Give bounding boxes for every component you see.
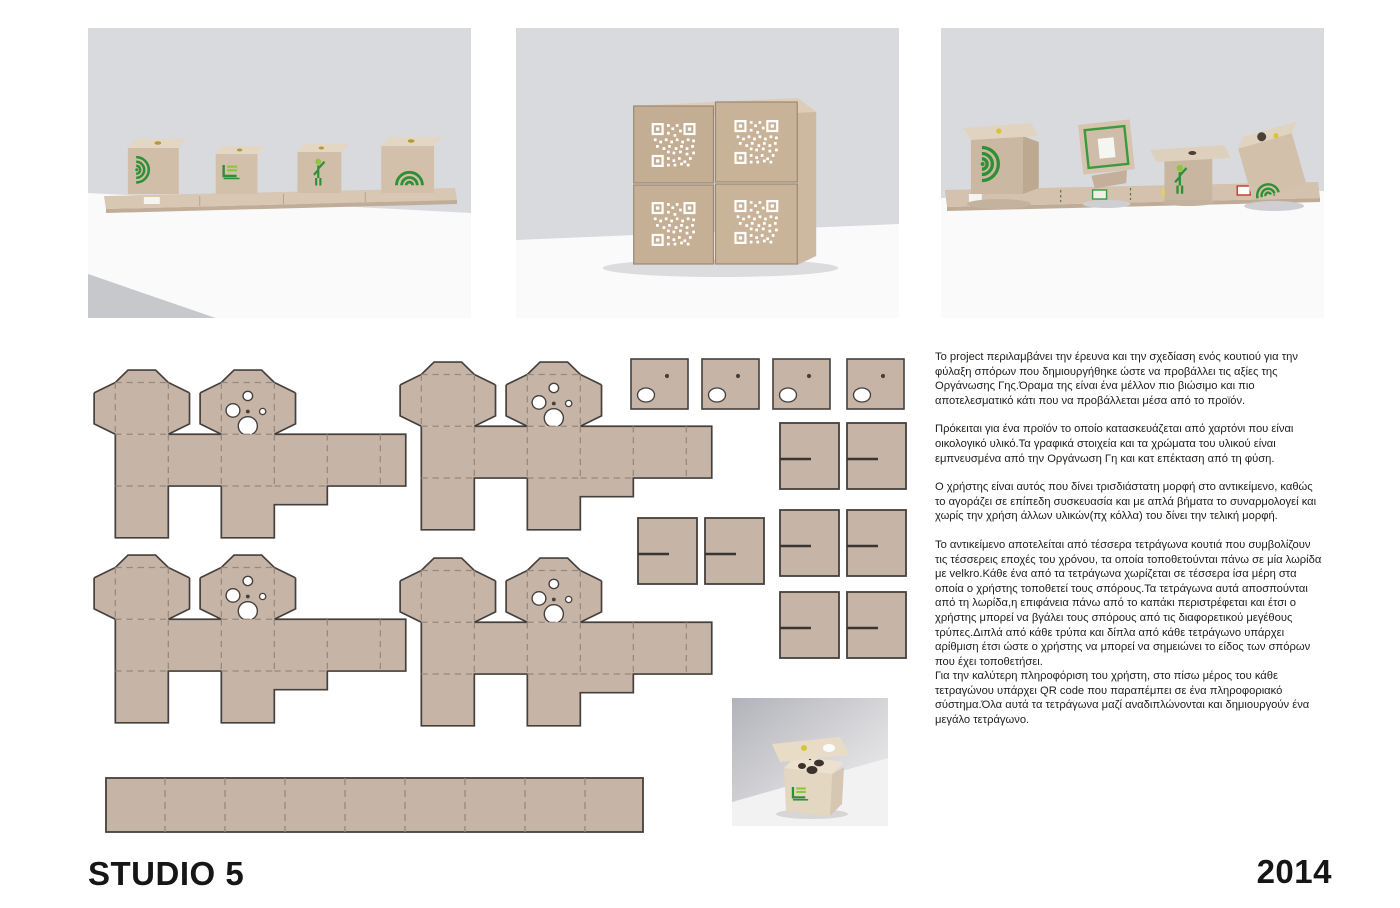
photo-floating-boxes-image bbox=[941, 28, 1324, 318]
project-description: Το project περιλαμβάνει την έρευνα και τ… bbox=[935, 350, 1325, 742]
photo-boxes-on-strip bbox=[88, 28, 471, 318]
photo-single-box bbox=[732, 698, 888, 826]
velcro-strip-template bbox=[105, 777, 644, 833]
portfolio-page: Το project περιλαμβάνει την έρευνα και τ… bbox=[0, 0, 1400, 908]
diecut-template-1 bbox=[92, 368, 410, 544]
divider-square-1b bbox=[846, 422, 907, 490]
photo-single-box-image bbox=[732, 698, 888, 826]
diecut-template-3 bbox=[92, 553, 410, 729]
photo-qr-stack-image bbox=[516, 28, 899, 318]
photo-qr-stack bbox=[516, 28, 899, 318]
divider-square-2b bbox=[704, 517, 765, 585]
photo-boxes-on-strip-image bbox=[88, 28, 471, 318]
photo-floating-boxes bbox=[941, 28, 1324, 318]
description-paragraph-3: Ο χρήστης είναι αυτός που δίνει τρισδιάσ… bbox=[935, 480, 1325, 524]
studio-label: STUDIO 5 bbox=[88, 855, 244, 893]
year-label: 2014 bbox=[1257, 853, 1332, 891]
divider-square-2a bbox=[637, 517, 698, 585]
divider-square-4b bbox=[846, 591, 907, 659]
divider-square-3a bbox=[779, 509, 840, 577]
description-paragraph-4: Το αντικείμενο αποτελείται από τέσσερα τ… bbox=[935, 538, 1325, 728]
description-paragraph-2: Πρόκειται για ένα προϊόν το οποίο κατασκ… bbox=[935, 422, 1325, 466]
divider-square-4a bbox=[779, 591, 840, 659]
divider-square-1a bbox=[779, 422, 840, 490]
lid-square-2 bbox=[701, 358, 760, 410]
lid-square-4 bbox=[846, 358, 905, 410]
lid-square-1 bbox=[630, 358, 689, 410]
description-paragraph-1: Το project περιλαμβάνει την έρευνα και τ… bbox=[935, 350, 1325, 408]
lid-square-3 bbox=[772, 358, 831, 410]
divider-square-3b bbox=[846, 509, 907, 577]
